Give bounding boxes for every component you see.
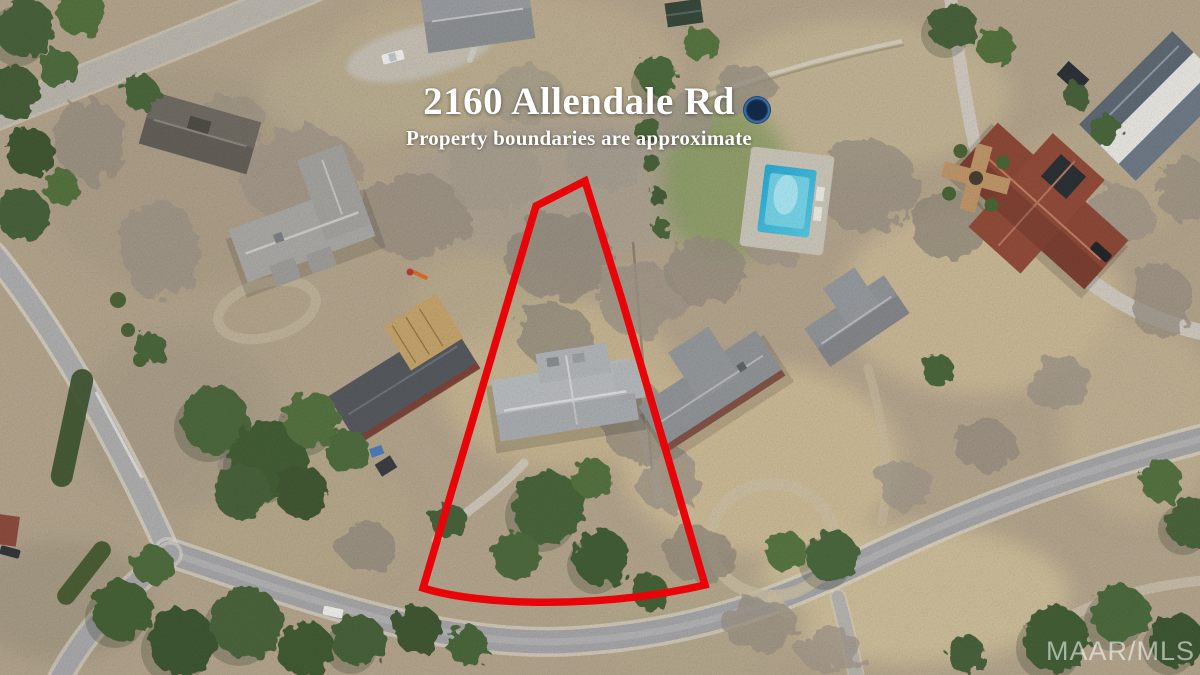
aerial-photo-scene [0, 0, 1200, 675]
aerial-listing-photo: 2160 Allendale Rd Property boundaries ar… [0, 0, 1200, 675]
photo-grain [0, 0, 1200, 675]
